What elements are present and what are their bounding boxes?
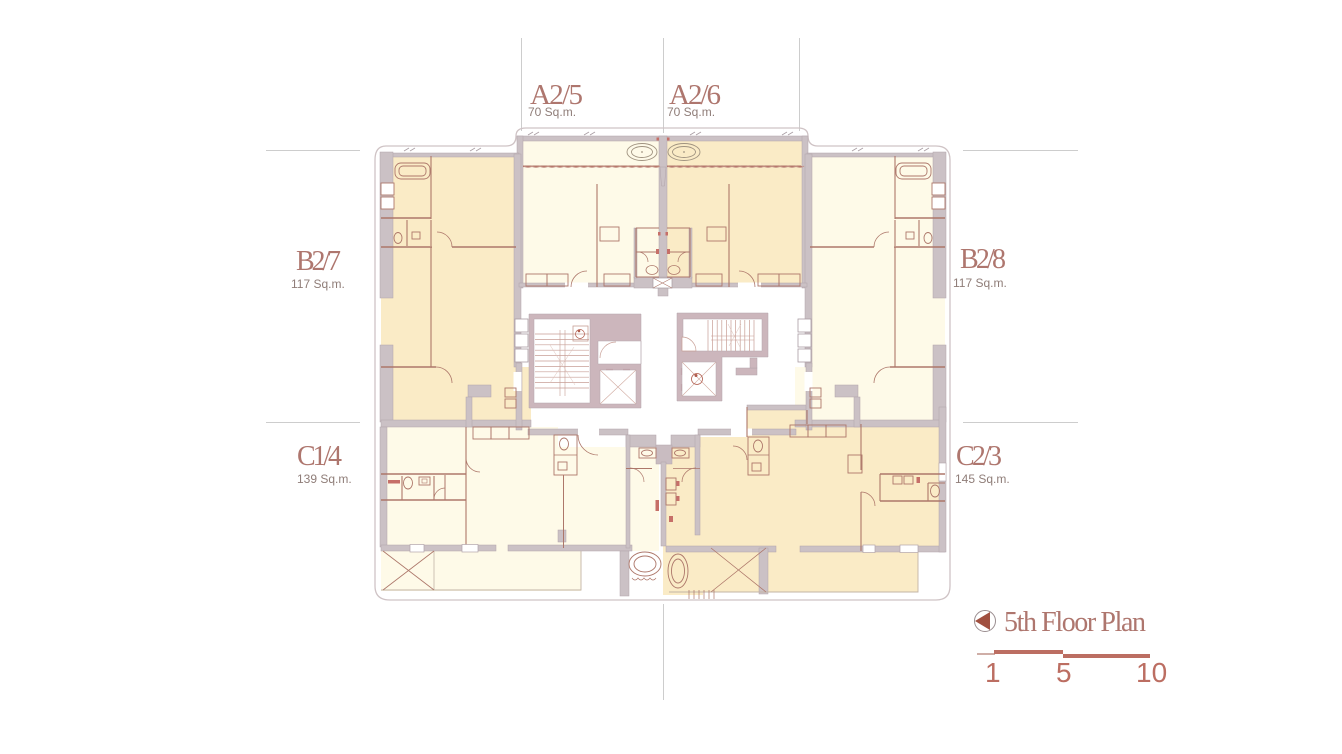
svg-text:1: 1	[985, 657, 1001, 688]
svg-text:C1/4: C1/4	[297, 441, 342, 472]
svg-text:139 Sq.m.: 139 Sq.m.	[297, 472, 352, 486]
svg-text:117 Sq.m.: 117 Sq.m.	[291, 277, 345, 291]
svg-text:5: 5	[1056, 657, 1072, 688]
svg-text:C2/3: C2/3	[956, 441, 1002, 472]
svg-text:B2/7: B2/7	[296, 246, 341, 277]
svg-text:10: 10	[1136, 657, 1167, 688]
svg-text:B2/8: B2/8	[960, 244, 1006, 275]
svg-text:117 Sq.m.: 117 Sq.m.	[953, 276, 1007, 290]
svg-text:145 Sq.m.: 145 Sq.m.	[955, 472, 1010, 486]
svg-text:5th Floor Plan: 5th Floor Plan	[1004, 607, 1146, 638]
svg-text:70 Sq.m.: 70 Sq.m.	[667, 105, 715, 119]
svg-text:70 Sq.m.: 70 Sq.m.	[528, 105, 576, 119]
